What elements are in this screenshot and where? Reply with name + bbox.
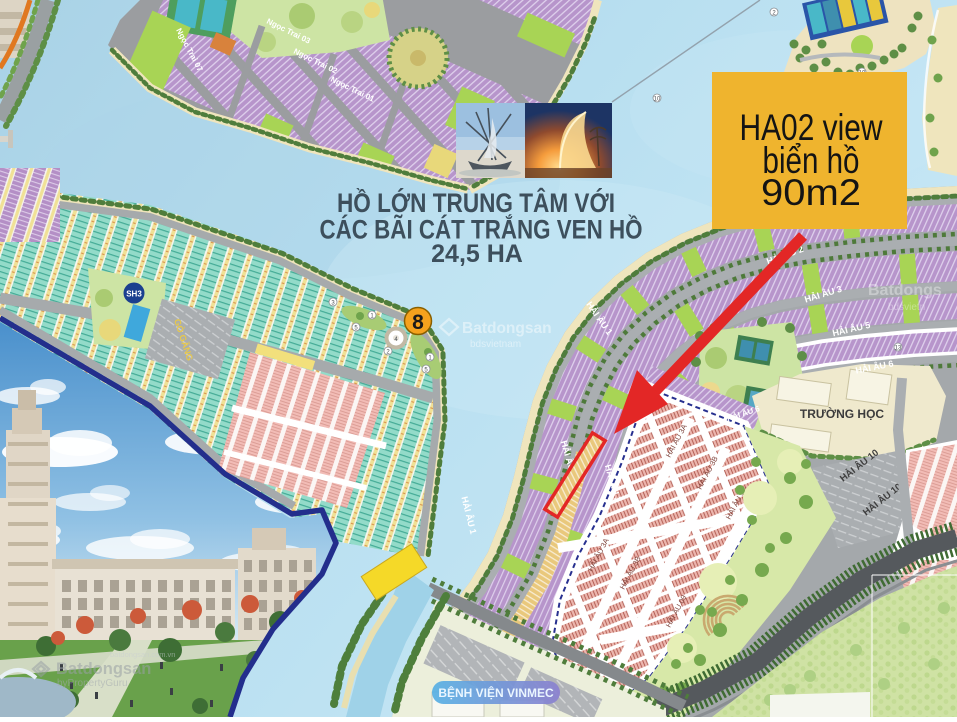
svg-text:byPropertyGuru: byPropertyGuru	[57, 678, 128, 689]
svg-text:90m2: 90m2	[761, 172, 861, 213]
svg-text:10: 10	[654, 96, 661, 102]
svg-text:8: 8	[412, 311, 424, 334]
svg-text:Batdongsan: Batdongsan	[462, 320, 552, 337]
svg-text:SH3: SH3	[126, 290, 142, 299]
svg-text:13: 13	[895, 345, 902, 351]
svg-text:bdsvietnam: bdsvietnam	[470, 339, 521, 350]
svg-text:24,5 HA: 24,5 HA	[431, 240, 523, 268]
svg-text:HỒ LỚN TRUNG TÂM VỚI: HỒ LỚN TRUNG TÂM VỚI	[337, 188, 615, 218]
svg-text:Batdongsan: Batdongsan	[56, 660, 151, 678]
svg-text:batdongsan.com.vn: batdongsan.com.vn	[110, 650, 175, 659]
svg-text:Batdongs: Batdongs	[868, 282, 942, 299]
svg-text:TRƯỜNG HỌC: TRƯỜNG HỌC	[800, 406, 885, 421]
svg-text:BỆNH VIỆN VINMEC: BỆNH VIỆN VINMEC	[438, 685, 554, 700]
svg-text:bdsvietn: bdsvietn	[888, 302, 925, 313]
